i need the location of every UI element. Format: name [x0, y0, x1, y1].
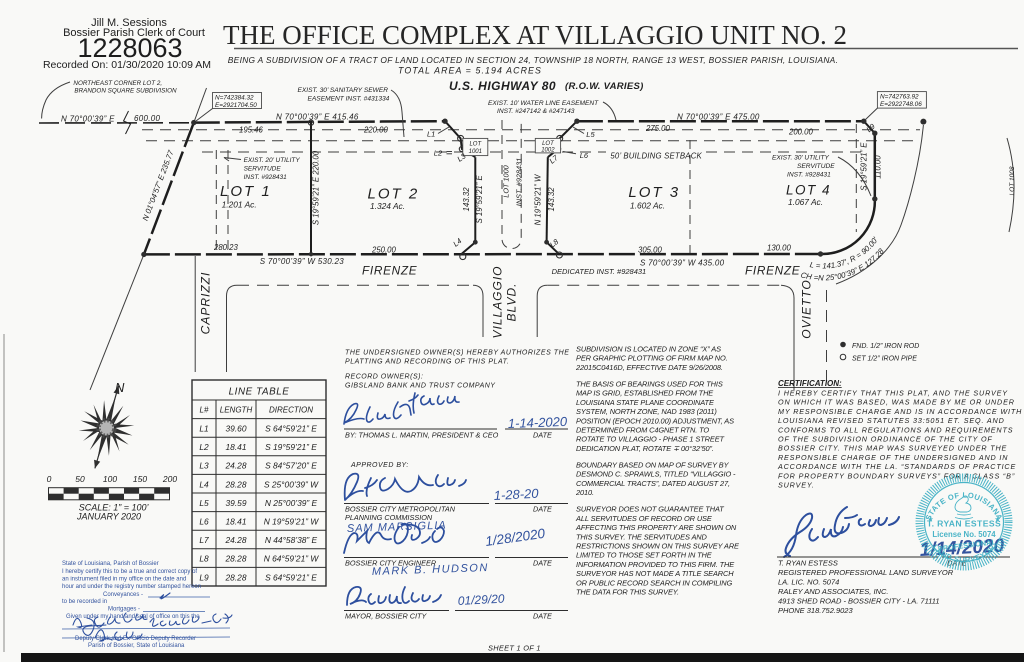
svg-text:S 19°59’21” E 220.00: S 19°59’21” E 220.00 [312, 150, 321, 225]
svg-text:L5: L5 [199, 498, 209, 508]
svg-text:SHEET 1 OF 1: SHEET 1 OF 1 [488, 644, 541, 653]
svg-text:BLVD.: BLVD. [505, 282, 519, 321]
svg-text:Parish of Bossier, State of Lo: Parish of Bossier, State of Louisiana [88, 643, 185, 649]
svg-text:MY RESPONSIBLE CHARGE AND IS I: MY RESPONSIBLE CHARGE AND IS IN ACCORDAN… [778, 407, 1022, 416]
svg-text:MAP IS GRID, ESTABLISHED FROM: MAP IS GRID, ESTABLISHED FROM THE [576, 389, 713, 398]
svg-text:50: 50 [75, 474, 85, 484]
svg-text:hour and under the registry nu: hour and under the registry number stamp… [62, 584, 201, 590]
svg-text:250.00: 250.00 [371, 245, 397, 254]
svg-text:LOT 1008: LOT 1008 [1009, 166, 1016, 195]
svg-text:SYSTEM, NORTH ZONE, NAD 1983 (: SYSTEM, NORTH ZONE, NAD 1983 (2011) [576, 407, 717, 416]
svg-text:N: N [115, 380, 125, 395]
svg-text:LA. LIC. NO. 5074: LA. LIC. NO. 5074 [778, 578, 839, 587]
svg-text:200: 200 [162, 474, 177, 484]
svg-text:SURVEY.: SURVEY. [778, 481, 815, 490]
svg-text:GIBSLAND BANK AND TRUST COMPAN: GIBSLAND BANK AND TRUST COMPANY [345, 383, 496, 390]
svg-text:22015C0416D, EFFECTIVE DATE 9/: 22015C0416D, EFFECTIVE DATE 9/26/2008. [575, 363, 723, 372]
svg-text:200.00: 200.00 [788, 128, 814, 137]
svg-text:I hereby certify this to be a: I hereby certify this to be a true and c… [62, 569, 197, 575]
svg-text:SET 1/2” IRON PIPE: SET 1/2” IRON PIPE [852, 356, 917, 363]
svg-text:RECORD OWNER(S):: RECORD OWNER(S): [345, 374, 423, 381]
svg-text:28.28: 28.28 [225, 572, 247, 582]
svg-text:24.28: 24.28 [225, 535, 247, 545]
svg-text:1.201 Ac.: 1.201 Ac. [222, 199, 257, 209]
svg-text:50’ BUILDING SETBACK: 50’ BUILDING SETBACK [610, 151, 702, 160]
svg-text:S 64°59’21” E: S 64°59’21” E [265, 424, 317, 434]
svg-text:150: 150 [133, 474, 147, 484]
svg-text:LOT: LOT [469, 142, 482, 148]
svg-text:REGISTERED PROFESSIONAL LAND S: REGISTERED PROFESSIONAL LAND SURVEYOR [778, 568, 954, 577]
svg-text:N 19°59’21” W: N 19°59’21” W [264, 517, 320, 527]
svg-text:L5: L5 [586, 130, 595, 139]
svg-text:S 70°00’39” W 435.00: S 70°00’39” W 435.00 [640, 259, 725, 268]
svg-text:DATE: DATE [533, 431, 552, 440]
svg-text:THE UNDERSIGNED OWNER(S) HEREB: THE UNDERSIGNED OWNER(S) HEREBY AUTHORIZ… [345, 350, 569, 357]
svg-text:28.28: 28.28 [225, 479, 247, 489]
svg-text:S 64°59’21” E: S 64°59’21” E [265, 572, 317, 582]
svg-text:FND. 1/2” IRON ROD: FND. 1/2” IRON ROD [852, 343, 919, 350]
svg-text:1.324 Ac.: 1.324 Ac. [370, 201, 405, 211]
svg-text:MAYOR, BOSSIER CITY: MAYOR, BOSSIER CITY [345, 612, 427, 621]
svg-text:EASEMENT INST. #431334: EASEMENT INST. #431334 [308, 96, 390, 103]
svg-text:OVIETTO: OVIETTO [800, 279, 814, 338]
svg-text:18.41: 18.41 [226, 517, 247, 527]
svg-text:ACCORDANCE WITH THE LA. “STAND: ACCORDANCE WITH THE LA. “STANDARDS OF PR… [777, 462, 1016, 471]
svg-text:INST. #928431: INST. #928431 [515, 158, 524, 206]
svg-text:SERVITUDE: SERVITUDE [797, 163, 835, 170]
svg-text:1.602 Ac.: 1.602 Ac. [630, 200, 665, 210]
svg-text:BOUNDARY BASED ON MAP OF SURVE: BOUNDARY BASED ON MAP OF SURVEY BY [576, 461, 730, 470]
svg-text:1.067 Ac.: 1.067 Ac. [788, 197, 823, 207]
svg-text:FIRENZE: FIRENZE [362, 264, 417, 278]
svg-text:FIRENZE: FIRENZE [745, 264, 800, 278]
svg-text:TOTAL AREA = 5.194 ACRES: TOTAL AREA = 5.194 ACRES [398, 66, 542, 76]
svg-text:EXIST. 20’ UTILITY: EXIST. 20’ UTILITY [244, 157, 301, 164]
svg-text:LOT 3: LOT 3 [628, 184, 680, 201]
svg-text:PLATTING AND RECORDING OF THIS: PLATTING AND RECORDING OF THIS PLAT. [345, 359, 509, 366]
svg-text:N 25°00’39” E: N 25°00’39” E [265, 498, 318, 508]
svg-text:LOUISIANA REVISED STATUTES 33:: LOUISIANA REVISED STATUTES 33:5051 ET. S… [778, 416, 1005, 425]
svg-text:DEDICATED INST. #928431: DEDICATED INST. #928431 [552, 267, 647, 276]
svg-text:Given under my hand and seal o: Given under my hand and seal of office o… [66, 614, 200, 620]
svg-text:E=2921704.50: E=2921704.50 [215, 102, 257, 109]
svg-text:39.59: 39.59 [226, 498, 247, 508]
svg-text:LOT 1000: LOT 1000 [502, 165, 511, 197]
svg-text:POSITION (EPOCH 2010.00) ADJUS: POSITION (EPOCH 2010.00) ADJUSTMENT, AS [576, 416, 734, 425]
svg-text:(R.O.W. VARIES): (R.O.W. VARIES) [565, 81, 644, 92]
svg-text:01/29/20: 01/29/20 [457, 592, 505, 608]
svg-text:LIMITED TO THOSE SET FORTH IN: LIMITED TO THOSE SET FORTH IN THE [576, 551, 712, 560]
svg-text:S 19°59’21” E: S 19°59’21” E [860, 142, 869, 191]
svg-text:Conveyances -: Conveyances - [103, 592, 143, 598]
svg-text:N=742763.92: N=742763.92 [880, 94, 919, 101]
svg-text:L1: L1 [199, 424, 208, 434]
svg-text:L#: L# [200, 406, 209, 415]
svg-text:ALL SERVITUDES OF RECORD OR US: ALL SERVITUDES OF RECORD OR USE [575, 514, 712, 523]
svg-text:L3: L3 [199, 461, 209, 471]
svg-text:LOT: LOT [542, 141, 555, 147]
svg-text:S 84°57’20” E: S 84°57’20” E [265, 461, 317, 471]
svg-text:DATE: DATE [533, 505, 552, 514]
svg-text:SUBDIVISION IS LOCATED IN ZONE: SUBDIVISION IS LOCATED IN ZONE “X” AS [576, 345, 721, 354]
svg-text:24.28: 24.28 [225, 461, 247, 471]
svg-text:an instrument filed in my offi: an instrument filed in my office on the … [62, 577, 186, 583]
svg-text:280.23: 280.23 [213, 243, 239, 252]
svg-text:LOT 1: LOT 1 [220, 183, 272, 200]
svg-text:LOUISIANA STATE PLANE COORDINA: LOUISIANA STATE PLANE COORDINATE [576, 398, 714, 407]
svg-text:THE DATA FOR THIS SURVEY.: THE DATA FOR THIS SURVEY. [576, 588, 679, 597]
svg-text:RALEY AND ASSOCIATES, INC.: RALEY AND ASSOCIATES, INC. [778, 587, 888, 596]
svg-text:INST. #928431: INST. #928431 [787, 172, 831, 179]
svg-text:LINE TABLE: LINE TABLE [229, 387, 290, 398]
svg-text:L7: L7 [199, 535, 209, 545]
svg-text:State of Louisiana, Parish of: State of Louisiana, Parish of Bossier [62, 561, 159, 567]
svg-text:275.00: 275.00 [645, 124, 671, 133]
svg-text:39.60: 39.60 [226, 424, 247, 434]
svg-text:ROTATE TO VILLAGGIO - PHASE 1: ROTATE TO VILLAGGIO - PHASE 1 STREET [576, 435, 725, 444]
svg-text:EXIST. 10’ WATER LINE EASEMENT: EXIST. 10’ WATER LINE EASEMENT [488, 100, 599, 107]
svg-text:ON WHICH IT WAS BASED, WAS MAD: ON WHICH IT WAS BASED, WAS MADE BY ME OR… [778, 398, 1015, 407]
svg-text:600.00: 600.00 [134, 114, 161, 123]
svg-text:L6: L6 [580, 151, 589, 160]
svg-text:N 64°59’21” W: N 64°59’21” W [264, 554, 320, 564]
svg-text:28.28: 28.28 [225, 554, 247, 564]
svg-text:JANUARY 2020: JANUARY 2020 [76, 512, 141, 522]
svg-text:L6: L6 [199, 517, 209, 527]
svg-text:S 25°00’39” W: S 25°00’39” W [264, 479, 319, 489]
svg-text:THIS SURVEY. THE SERVITUDES AN: THIS SURVEY. THE SERVITUDES AND [576, 532, 708, 541]
svg-text:CONFORMS TO ALL REGULATIONS AN: CONFORMS TO ALL REGULATIONS AND REQUIREM… [778, 425, 1013, 434]
svg-text:OF THE SUBDIVISION ORDINANCE O: OF THE SUBDIVISION ORDINANCE OF THE CITY… [778, 435, 993, 444]
svg-text:RESPONSIBLE CHARGE OF THE UNDE: RESPONSIBLE CHARGE OF THE UNDERSIGNED AN… [778, 453, 1008, 462]
svg-text:18.41: 18.41 [226, 442, 247, 452]
svg-text:N 70°00’39” E 415.46: N 70°00’39” E 415.46 [276, 113, 359, 122]
svg-text:Mortgages -: Mortgages - [108, 607, 140, 613]
svg-text:305.00: 305.00 [638, 245, 663, 254]
svg-text:S 19°59’21” E: S 19°59’21” E [475, 175, 484, 224]
svg-text:L4: L4 [199, 479, 209, 489]
svg-text:E=2922748.06: E=2922748.06 [880, 101, 922, 108]
svg-text:N=742384.32: N=742384.32 [215, 95, 254, 102]
svg-text:S 19°59’21” E: S 19°59’21” E [265, 442, 317, 452]
svg-text:PHONE 318.752.9023: PHONE 318.752.9023 [778, 606, 853, 615]
svg-text:U.S. HIGHWAY 80: U.S. HIGHWAY 80 [449, 79, 556, 93]
svg-text:INST. #928431: INST. #928431 [244, 174, 288, 181]
svg-text:143.32: 143.32 [462, 187, 471, 212]
svg-text:4913 SHED ROAD - BOSSIER CITY: 4913 SHED ROAD - BOSSIER CITY - LA. 7111… [778, 597, 940, 606]
svg-text:S 70°00’39” W 530.23: S 70°00’39” W 530.23 [260, 257, 345, 266]
svg-text:L2: L2 [199, 442, 209, 452]
svg-text:195.46: 195.46 [239, 125, 264, 134]
svg-text:T. RYAN ESTESS: T. RYAN ESTESS [927, 519, 1001, 529]
svg-text:RESTRICTIONS SHOWN ON THIS SUR: RESTRICTIONS SHOWN ON THIS SURVEY ARE [576, 542, 739, 551]
svg-text:CAPRIZZI: CAPRIZZI [199, 272, 213, 335]
svg-text:OR PUBLIC RECORD SEARCH IN COM: OR PUBLIC RECORD SEARCH IN COMPILING [576, 578, 732, 587]
svg-text:SURVEYOR DOES NOT GUARANTEE TH: SURVEYOR DOES NOT GUARANTEE THAT [576, 505, 724, 514]
svg-text:APPROVED BY:: APPROVED BY: [350, 462, 409, 469]
svg-text:N 70°00’39” E: N 70°00’39” E [61, 114, 115, 123]
svg-text:2010.: 2010. [575, 488, 594, 497]
svg-text:110.00: 110.00 [874, 155, 883, 179]
svg-text:SERVITUDE: SERVITUDE [244, 166, 282, 173]
svg-text:1-28-20: 1-28-20 [493, 486, 539, 503]
svg-text:L8: L8 [199, 554, 209, 564]
svg-text:SURVEYOR HAS NOT MADE A TITLE: SURVEYOR HAS NOT MADE A TITLE SEARCH [576, 569, 734, 578]
svg-text:THE OFFICE COMPLEX AT VILLAGGI: THE OFFICE COMPLEX AT VILLAGGIO UNIT NO.… [223, 20, 847, 50]
svg-text:VILLAGGIO: VILLAGGIO [491, 265, 505, 338]
svg-text:143.32: 143.32 [547, 187, 556, 212]
svg-text:N 19°59’21” W: N 19°59’21” W [534, 174, 543, 225]
svg-text:0: 0 [47, 474, 52, 484]
svg-text:D​IRECTION: D​IRECTION [269, 406, 313, 415]
svg-text:COMMERCIAL TRACTS”, DATED AUGU: COMMERCIAL TRACTS”, DATED AUGUST 27, [576, 479, 730, 488]
svg-text:220.00: 220.00 [363, 125, 389, 134]
svg-text:1-14-2020: 1-14-2020 [508, 414, 569, 431]
svg-text:NORTHEAST CORNER LOT 2,: NORTHEAST CORNER LOT 2, [73, 80, 162, 87]
svg-text:EXIST. 30’ SANITARY SEWER: EXIST. 30’ SANITARY SEWER [298, 87, 389, 94]
svg-text:FOR PROPERTY BOUNDARY SURVEYS”: FOR PROPERTY BOUNDARY SURVEYS” FOR A CLA… [778, 471, 1015, 480]
svg-text:PER GRAPHIC PLOTTING OF FIRM M: PER GRAPHIC PLOTTING OF FIRM MAP NO. [576, 354, 728, 363]
svg-text:BOSSIER CITY. THIS MAP WAS SUR: BOSSIER CITY. THIS MAP WAS SURVEYED UNDE… [778, 444, 1007, 453]
svg-text:EXIST. 30’ UTILITY: EXIST. 30’ UTILITY [772, 155, 830, 162]
svg-text:L1: L1 [427, 130, 435, 139]
svg-text:N 44°58’38” E: N 44°58’38” E [265, 535, 318, 545]
svg-text:N 70°00’39” E 475.00: N 70°00’39” E 475.00 [677, 113, 760, 122]
svg-text:DATE: DATE [533, 559, 552, 568]
svg-text:BRANDON SQUARE SUBDIVISION: BRANDON SQUARE SUBDIVISION [74, 88, 177, 95]
svg-text:BY: THOMAS L. MARTIN, PRESIDEN: BY: THOMAS L. MARTIN, PRESIDENT & CEO [345, 431, 499, 440]
svg-text:DEDICATION PLAT, ROTATE ∓ 00°3: DEDICATION PLAT, ROTATE ∓ 00°32’50”. [576, 444, 714, 453]
svg-text:DETERMINED FROM C4GNET RTN. TO: DETERMINED FROM C4GNET RTN. TO [576, 426, 709, 435]
svg-text:1001: 1001 [469, 149, 482, 155]
svg-text:L9: L9 [199, 572, 209, 582]
svg-text:BEING A SUBDIVISION OF A TRACT: BEING A SUBDIVISION OF A TRACT OF LAND L… [228, 55, 838, 65]
svg-text:T. RYAN ESTESS: T. RYAN ESTESS [778, 559, 838, 568]
svg-text:100: 100 [103, 474, 117, 484]
svg-text:AFFECTING THIS PROPERTY ARE SH: AFFECTING THIS PROPERTY ARE SHOWN ON [575, 523, 737, 532]
svg-text:DATE: DATE [533, 612, 552, 621]
svg-text:THE BASIS OF BEARINGS USED FOR: THE BASIS OF BEARINGS USED FOR THIS [576, 380, 723, 389]
svg-text:INST. #247142 & #247143: INST. #247142 & #247143 [497, 108, 575, 115]
svg-text:L2: L2 [434, 149, 443, 158]
svg-text:CERTIFICATION:: CERTIFICATION: [778, 379, 842, 388]
svg-text:INFORMATION PROVIDED TO THIS F: INFORMATION PROVIDED TO THIS FIRM. THE [576, 560, 734, 569]
svg-text:LOT 4: LOT 4 [786, 183, 831, 198]
svg-text:to be recorded in: to be recorded in [62, 599, 107, 605]
svg-text:130.00: 130.00 [767, 244, 792, 253]
svg-text:LOT 2: LOT 2 [368, 186, 420, 203]
svg-text:L​ENGTH: L​ENGTH [220, 406, 253, 415]
svg-text:Recorded On: 01/30/2020 10:09: Recorded On: 01/30/2020 10:09 AM [43, 59, 211, 71]
svg-text:DESMOND C. SPRAWLS, TITLED “VI: DESMOND C. SPRAWLS, TITLED “VILLAGGIO - [576, 470, 736, 479]
svg-text:I HEREBY CERTIFY THAT THIS PLA: I HEREBY CERTIFY THAT THIS PLAT, AND THE… [778, 389, 1008, 398]
